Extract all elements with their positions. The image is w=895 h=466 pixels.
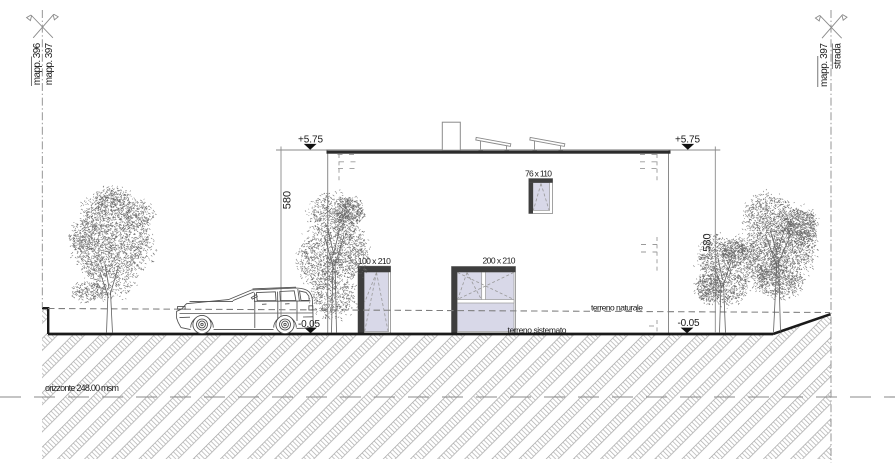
svg-text:200 x 210: 200 x 210 [483, 256, 516, 266]
svg-text:orizzonte 248.00 msm: orizzonte 248.00 msm [45, 383, 119, 393]
svg-text:terreno naturale: terreno naturale [591, 302, 643, 312]
svg-text:76 x 110: 76 x 110 [525, 169, 552, 179]
svg-text:strada: strada [832, 43, 843, 69]
svg-text:+5.75: +5.75 [298, 134, 323, 145]
svg-text:terreno sistemato: terreno sistemato [508, 325, 567, 335]
svg-text:+5.75: +5.75 [675, 134, 700, 145]
svg-text:580: 580 [282, 191, 294, 209]
svg-text:mapp. 397: mapp. 397 [819, 43, 830, 87]
svg-text:mapp. 397: mapp. 397 [44, 42, 55, 85]
svg-text:mapp. 396: mapp. 396 [32, 42, 43, 85]
svg-text:-0.05: -0.05 [678, 318, 700, 329]
